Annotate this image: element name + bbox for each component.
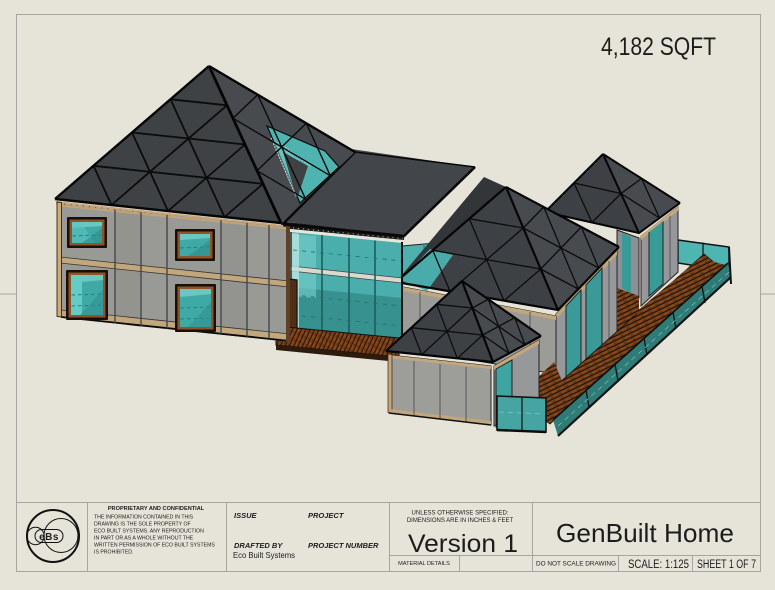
svg-text:IN PART OR AS A WHOLE WITHOUT: IN PART OR AS A WHOLE WITHOUT THE	[94, 536, 194, 542]
svg-text:DO NOT SCALE DRAWING: DO NOT SCALE DRAWING	[536, 561, 616, 568]
svg-text:PROJECT NUMBER: PROJECT NUMBER	[308, 541, 379, 550]
svg-text:IS PROHIBITED.: IS PROHIBITED.	[94, 550, 134, 556]
svg-text:UNLESS OTHERWISE SPECIFIED:: UNLESS OTHERWISE SPECIFIED:	[412, 511, 509, 517]
svg-text:eBs: eBs	[39, 532, 59, 543]
svg-text:Version 1: Version 1	[408, 530, 518, 558]
svg-text:PROPRIETARY AND CONFIDENTIAL: PROPRIETARY AND CONFIDENTIAL	[108, 506, 205, 512]
svg-text:DRAWING IS THE SOLE PROPERTY O: DRAWING IS THE SOLE PROPERTY OF	[94, 522, 191, 528]
svg-text:DRAFTED BY: DRAFTED BY	[234, 541, 283, 550]
svg-text:ISSUE: ISSUE	[234, 511, 258, 520]
svg-text:ECO BUILT SYSTEMS. ANY REPROD: ECO BUILT SYSTEMS. ANY REPRODUCTION	[94, 529, 204, 535]
svg-text:DIMENSIONS ARE IN INCHES & FEE: DIMENSIONS ARE IN INCHES & FEET	[407, 518, 514, 524]
svg-text:SCALE: 1:125: SCALE: 1:125	[628, 559, 689, 571]
svg-text:THE INFORMATION CONTAINED IN T: THE INFORMATION CONTAINED IN THIS	[94, 515, 194, 521]
svg-text:SHEET 1 OF 7: SHEET 1 OF 7	[697, 559, 756, 571]
svg-text:WRITTEN PERMISSION OF ECO BUIL: WRITTEN PERMISSION OF ECO BUILT SYSTEMS	[94, 543, 215, 549]
svg-text:Eco Built Systems: Eco Built Systems	[233, 550, 295, 560]
svg-text:GenBuilt Home: GenBuilt Home	[556, 518, 734, 548]
svg-text:PROJECT: PROJECT	[308, 511, 345, 520]
svg-text:4,182 SQFT: 4,182 SQFT	[601, 33, 716, 61]
svg-text:MATERIAL DETAILS: MATERIAL DETAILS	[398, 561, 450, 567]
